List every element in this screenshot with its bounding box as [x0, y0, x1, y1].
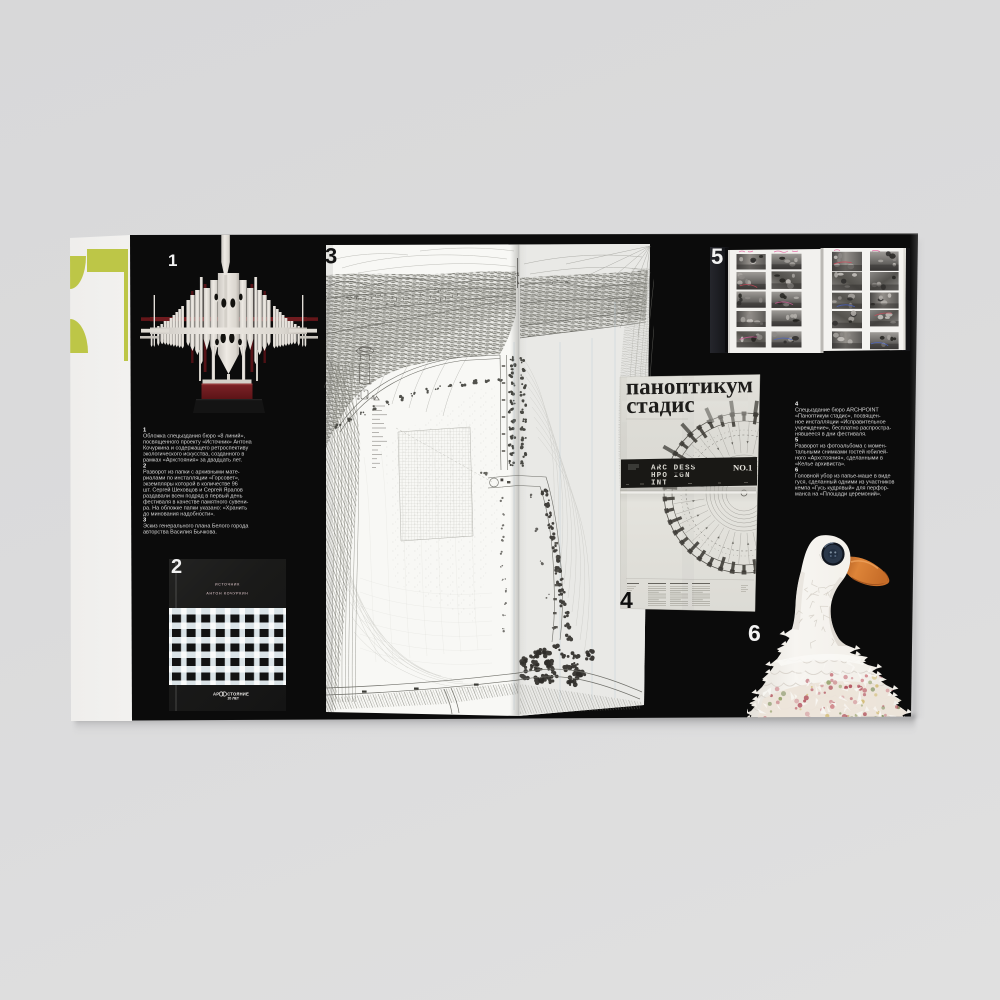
svg-text:АР: АР: [213, 692, 219, 697]
svg-text:20 ЛЕТ: 20 ЛЕТ: [228, 697, 240, 701]
svg-text:NO.1: NO.1: [733, 463, 752, 473]
svg-text:стадис: стадис: [626, 392, 695, 418]
svg-text:3: 3: [325, 244, 337, 269]
